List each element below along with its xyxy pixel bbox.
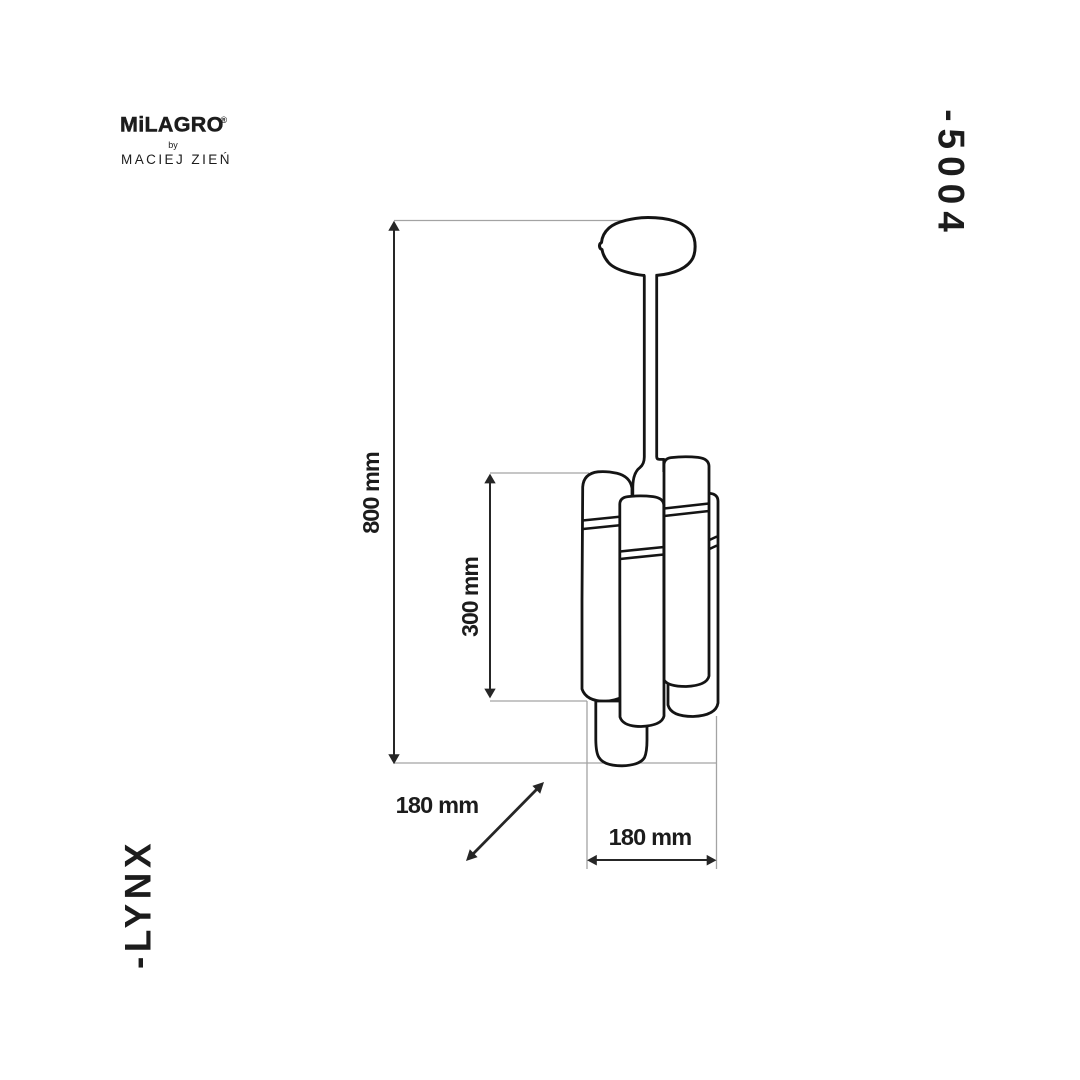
svg-text:MACIEJ ZIEŃ: MACIEJ ZIEŃ bbox=[121, 152, 232, 167]
svg-text:-LYNX: -LYNX bbox=[118, 839, 159, 969]
svg-text:by: by bbox=[168, 140, 178, 150]
svg-text:180 mm: 180 mm bbox=[609, 824, 692, 850]
svg-text:MiLAGRO: MiLAGRO bbox=[120, 113, 224, 137]
svg-text:800 mm: 800 mm bbox=[358, 452, 384, 534]
svg-text:-5004: -5004 bbox=[931, 109, 972, 239]
svg-text:180 mm: 180 mm bbox=[396, 792, 479, 818]
svg-text:300 mm: 300 mm bbox=[457, 557, 483, 637]
svg-text:®: ® bbox=[221, 115, 228, 125]
